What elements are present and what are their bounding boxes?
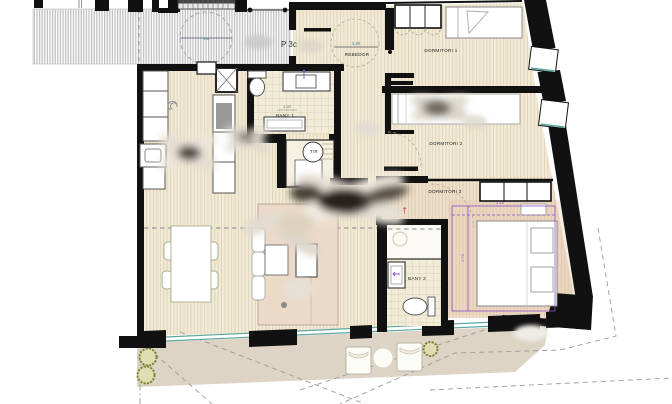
svg-text:BANY 1: BANY 1 [276, 113, 294, 118]
svg-text:REBEDOR: REBEDOR [345, 52, 370, 57]
svg-text:DORMITORI 1: DORMITORI 1 [424, 48, 457, 53]
svg-text:DORMITORI 3: DORMITORI 3 [428, 189, 461, 194]
svg-text:3.8: 3.8 [203, 36, 209, 41]
svg-text:T/R: T/R [310, 149, 318, 154]
svg-text:DORMITORI 2: DORMITORI 2 [429, 141, 462, 146]
svg-text:2.70: 2.70 [460, 253, 465, 262]
svg-text:1.20: 1.20 [352, 41, 361, 46]
svg-text:3.16: 3.16 [496, 200, 505, 205]
svg-text:1.20: 1.20 [283, 104, 292, 109]
svg-text:P 3c: P 3c [281, 40, 297, 49]
svg-text:BANY 2: BANY 2 [408, 276, 426, 281]
